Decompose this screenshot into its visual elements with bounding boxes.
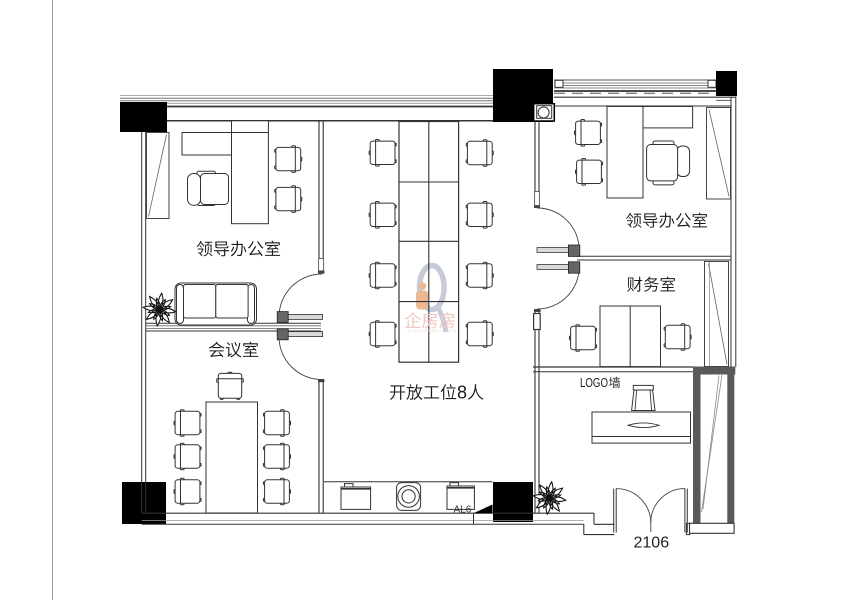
svg-text:AL6: AL6 xyxy=(454,505,472,516)
svg-text:8: 8 xyxy=(457,383,467,403)
svg-text:2106: 2106 xyxy=(634,535,670,552)
svg-text:LOGO: LOGO xyxy=(580,376,608,390)
svg-text:QIFANGFANG.COM: QIFANGFANG.COM xyxy=(408,328,457,333)
